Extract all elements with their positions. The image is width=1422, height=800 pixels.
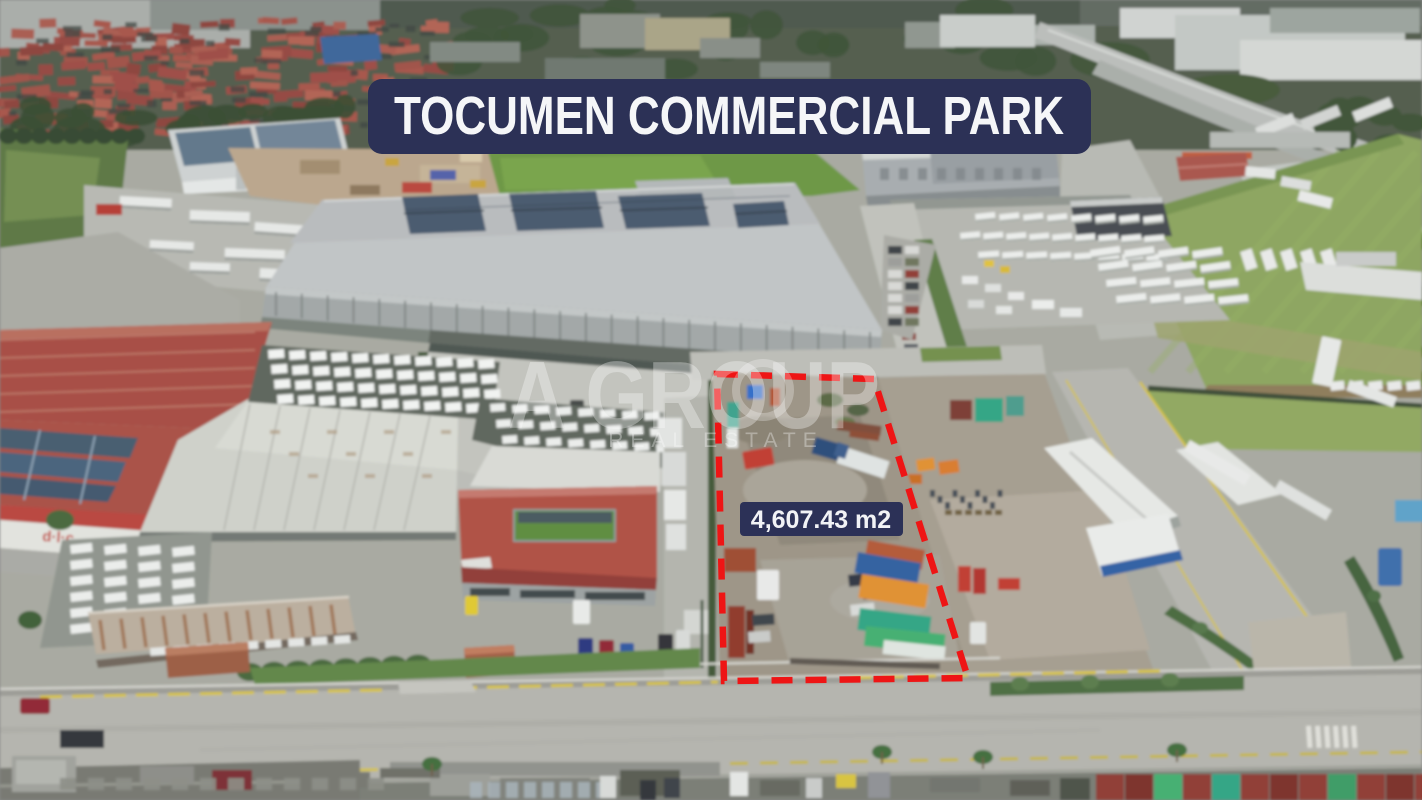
svg-text:REAL ESTATE: REAL ESTATE [608,429,823,452]
svg-text:TOCUMEN COMMERCIAL PARK: TOCUMEN COMMERCIAL PARK [394,86,1064,146]
svg-text:4,607.43 m2: 4,607.43 m2 [751,506,891,534]
